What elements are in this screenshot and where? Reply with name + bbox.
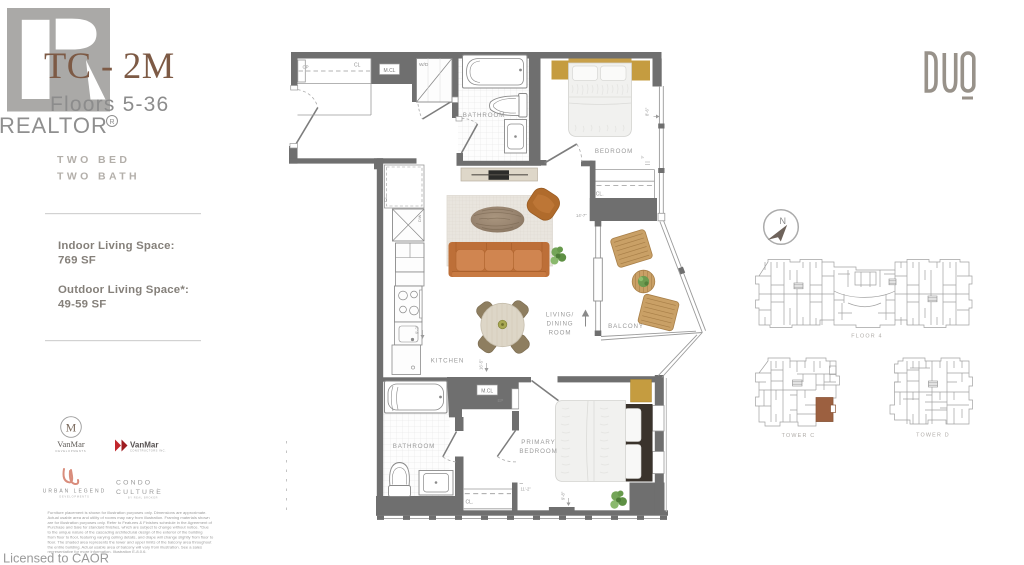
svg-text:BALCONY: BALCONY <box>608 323 644 330</box>
svg-text:Floors 5-36: Floors 5-36 <box>50 93 169 116</box>
svg-text:TOWER D: TOWER D <box>916 433 950 439</box>
svg-text:EP: EP <box>498 398 504 403</box>
svg-text:REALTOR: REALTOR <box>0 113 108 138</box>
svg-text:49-59 SF: 49-59 SF <box>58 299 106 311</box>
svg-text:CL.: CL. <box>466 500 474 506</box>
svg-text:LIVING/: LIVING/ <box>546 312 574 319</box>
svg-text:Indoor Living Space:: Indoor Living Space: <box>58 240 175 252</box>
svg-text:VanMar: VanMar <box>57 439 85 449</box>
svg-text:DINING: DINING <box>546 321 573 328</box>
svg-text:W/D: W/D <box>419 62 429 68</box>
svg-text:M.CL: M.CL <box>384 68 396 74</box>
svg-text:16'-5": 16'-5" <box>479 359 484 370</box>
svg-text:8'-6": 8'-6" <box>645 107 650 116</box>
svg-text:11'-2": 11'-2" <box>521 487 532 492</box>
svg-text:CP: CP <box>303 65 309 70</box>
svg-text:BEDROOM: BEDROOM <box>595 148 633 155</box>
svg-text:BEDROOM: BEDROOM <box>519 448 557 455</box>
svg-text:M.CL: M.CL <box>481 389 493 395</box>
svg-text:CL: CL <box>354 63 361 69</box>
svg-text:D/W: D/W <box>418 214 422 222</box>
svg-text:N: N <box>780 216 787 226</box>
svg-text:VanMar: VanMar <box>130 441 158 450</box>
svg-text:BY REAL BROKER: BY REAL BROKER <box>128 497 158 500</box>
svg-text:14'-7": 14'-7" <box>576 213 587 218</box>
svg-text:CONDO: CONDO <box>116 480 152 487</box>
svg-text:M: M <box>66 421 77 435</box>
svg-text:BATHROOM: BATHROOM <box>393 443 436 450</box>
svg-text:FLOOR 4: FLOOR 4 <box>851 334 882 340</box>
svg-text:Outdoor Living Space*:: Outdoor Living Space*: <box>58 284 189 296</box>
svg-text:CULTURE: CULTURE <box>116 489 163 496</box>
svg-text:CL.: CL. <box>596 192 604 198</box>
svg-text:9'-8": 9'-8" <box>561 491 566 500</box>
svg-text:R: R <box>110 119 115 126</box>
svg-text:9'-2": 9'-2" <box>415 325 420 334</box>
svg-text:PRIMARY: PRIMARY <box>521 439 555 446</box>
svg-text:Licensed to CAOR: Licensed to CAOR <box>3 551 109 565</box>
svg-text:KITCHEN: KITCHEN <box>431 358 464 365</box>
svg-text:URBAN LEGEND: URBAN LEGEND <box>43 489 106 495</box>
svg-text:BATHROOM: BATHROOM <box>463 112 506 119</box>
svg-text:CONSTRUCTORS INC.: CONSTRUCTORS INC. <box>130 449 166 453</box>
svg-text:TWO BATH: TWO BATH <box>57 171 140 183</box>
svg-text:TC - 2M: TC - 2M <box>44 45 175 86</box>
svg-text:TOWER C: TOWER C <box>782 433 816 439</box>
svg-text:769 SF: 769 SF <box>58 255 96 267</box>
svg-text:CL: CL <box>383 196 388 202</box>
svg-text:DEVELOPMENTS: DEVELOPMENTS <box>59 496 89 499</box>
svg-text:ROOM: ROOM <box>549 330 572 337</box>
svg-text:9': 9' <box>641 155 645 158</box>
svg-text:TWO BED: TWO BED <box>57 154 130 166</box>
svg-text:DEVELOPMENTS: DEVELOPMENTS <box>56 449 87 453</box>
